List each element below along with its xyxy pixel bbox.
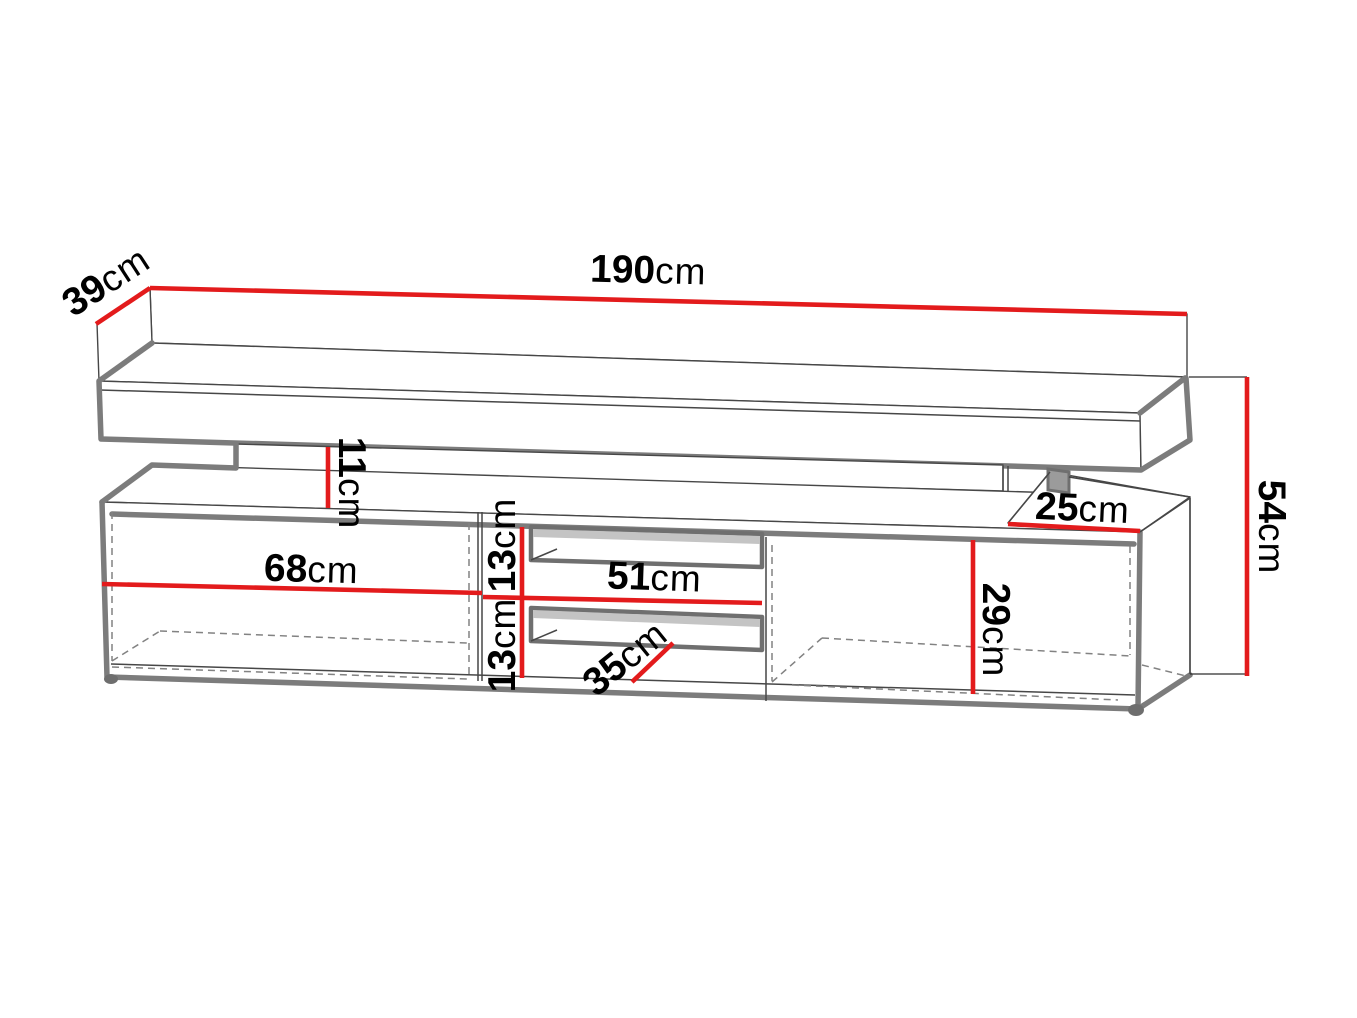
dim-label-51cm: 51cm xyxy=(606,554,702,600)
front-right-foot xyxy=(1128,704,1144,716)
tv-stand-drawing: 39cm 190cm 54cm 11cm 25cm 68cm 51cm 13cm… xyxy=(0,0,1357,1018)
cabinet-front-right-edge xyxy=(1138,532,1140,709)
dim-label-190cm: 190cm xyxy=(590,248,707,294)
front-left-foot xyxy=(104,674,118,684)
dim-label-13cm-upper: 13cm xyxy=(481,498,524,593)
dim-label-25cm: 25cm xyxy=(1034,485,1131,532)
dim-label-54cm: 54cm xyxy=(1250,480,1293,575)
dim-label-68cm: 68cm xyxy=(263,547,359,592)
dim-label-13cm-lower: 13cm xyxy=(481,598,524,693)
furniture-dimension-diagram: 39cm 190cm 54cm 11cm 25cm 68cm 51cm 13cm… xyxy=(0,0,1357,1018)
dim-label-11cm: 11cm xyxy=(330,437,373,530)
height-extension-lines xyxy=(1189,377,1247,674)
dim-label-29cm: 29cm xyxy=(974,583,1017,678)
